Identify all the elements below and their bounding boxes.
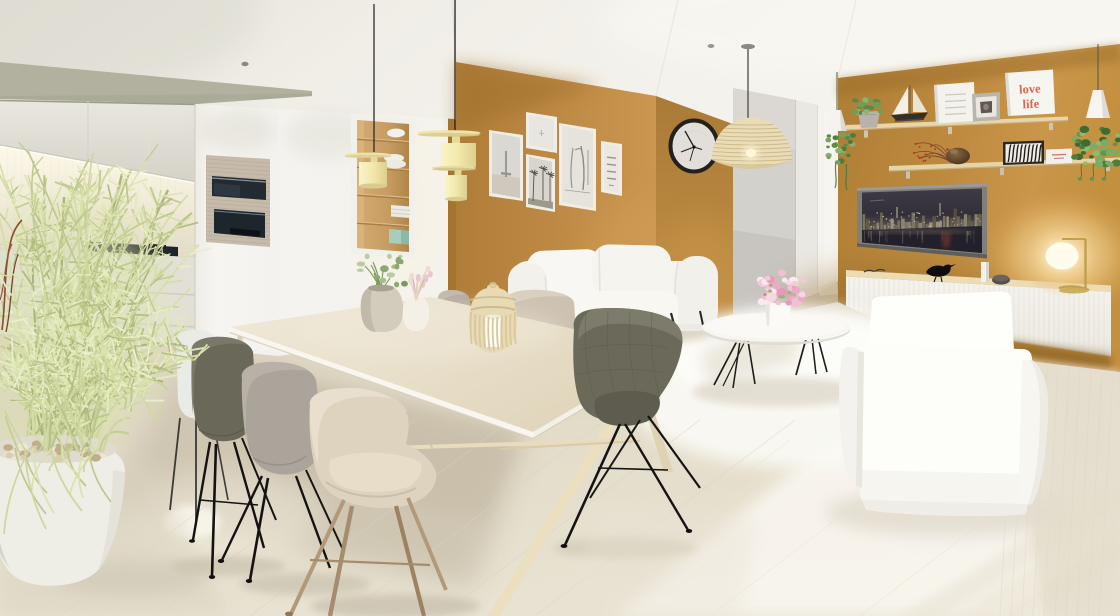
svg-text:love: love <box>1019 81 1042 96</box>
svg-text:life: life <box>1022 97 1040 112</box>
